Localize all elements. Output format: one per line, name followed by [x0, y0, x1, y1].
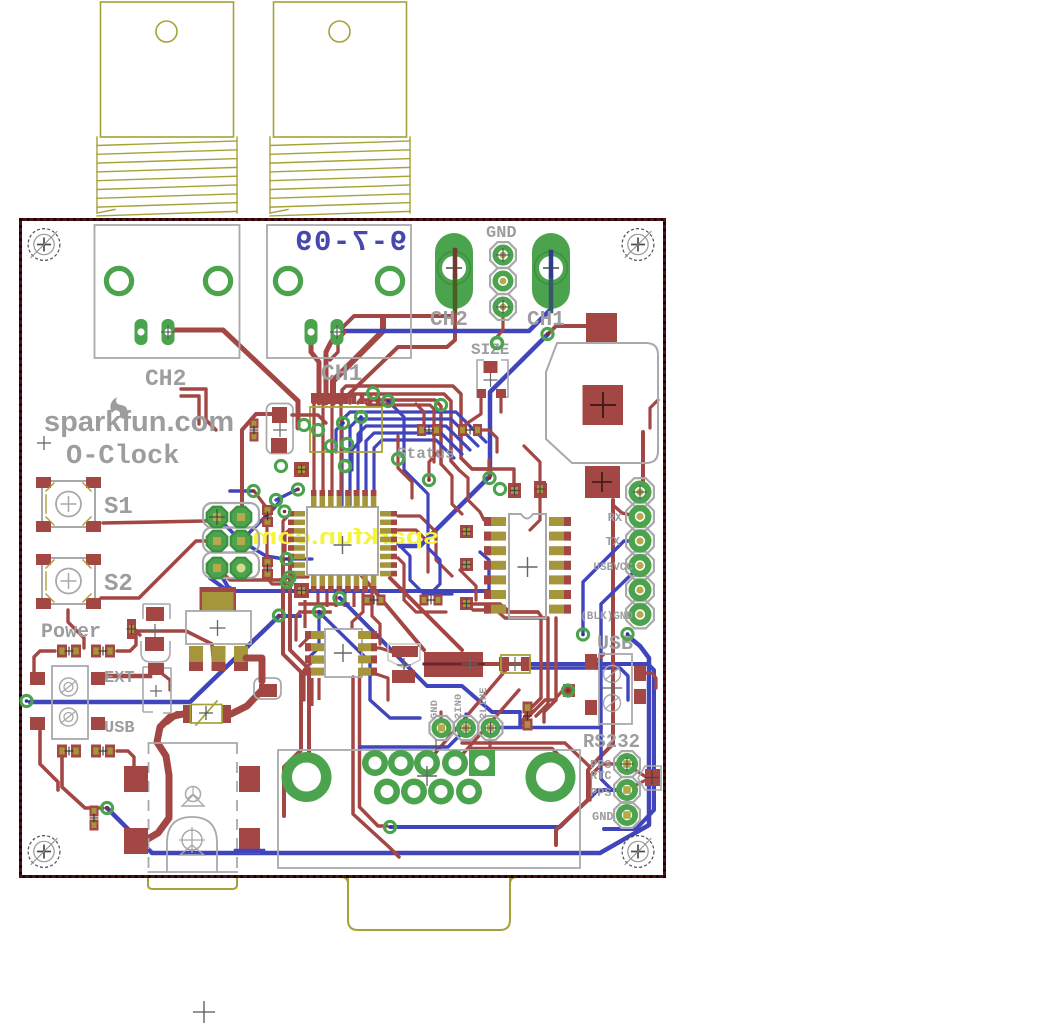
svg-text:O-Clock: O-Clock: [66, 442, 179, 472]
svg-text:USB: USB: [597, 633, 633, 656]
svg-text:sparkfun.com: sparkfun.com: [44, 406, 234, 438]
svg-text:Power: Power: [41, 621, 101, 644]
svg-text:GND: GND: [486, 224, 517, 243]
svg-text:RX: RX: [608, 511, 623, 525]
svg-text:CH2: CH2: [145, 366, 186, 392]
svg-text:S1: S1: [104, 494, 133, 521]
svg-text:GND: GND: [429, 700, 441, 719]
svg-text:2IN0: 2IN0: [453, 694, 465, 719]
svg-text:CH2: CH2: [430, 309, 468, 332]
svg-text:USB: USB: [104, 719, 135, 738]
svg-text:2LINE: 2LINE: [478, 687, 490, 719]
svg-text:TX: TX: [606, 535, 621, 549]
svg-text:CH1: CH1: [321, 361, 362, 387]
svg-text:(BLK)GND: (BLK)GND: [580, 611, 633, 623]
svg-text:GND: GND: [592, 810, 614, 824]
svg-text:RTC: RTC: [590, 769, 612, 783]
svg-text:9-7-09: 9-7-09: [294, 226, 407, 259]
svg-text:Status: Status: [397, 445, 455, 463]
svg-text:S2: S2: [104, 571, 133, 598]
svg-text:EXT: EXT: [104, 669, 135, 688]
svg-text:PPS: PPS: [590, 786, 612, 800]
svg-text:USBVCC: USBVCC: [593, 562, 633, 574]
svg-text:CH1: CH1: [527, 309, 565, 332]
svg-text:RS232: RS232: [583, 731, 640, 753]
